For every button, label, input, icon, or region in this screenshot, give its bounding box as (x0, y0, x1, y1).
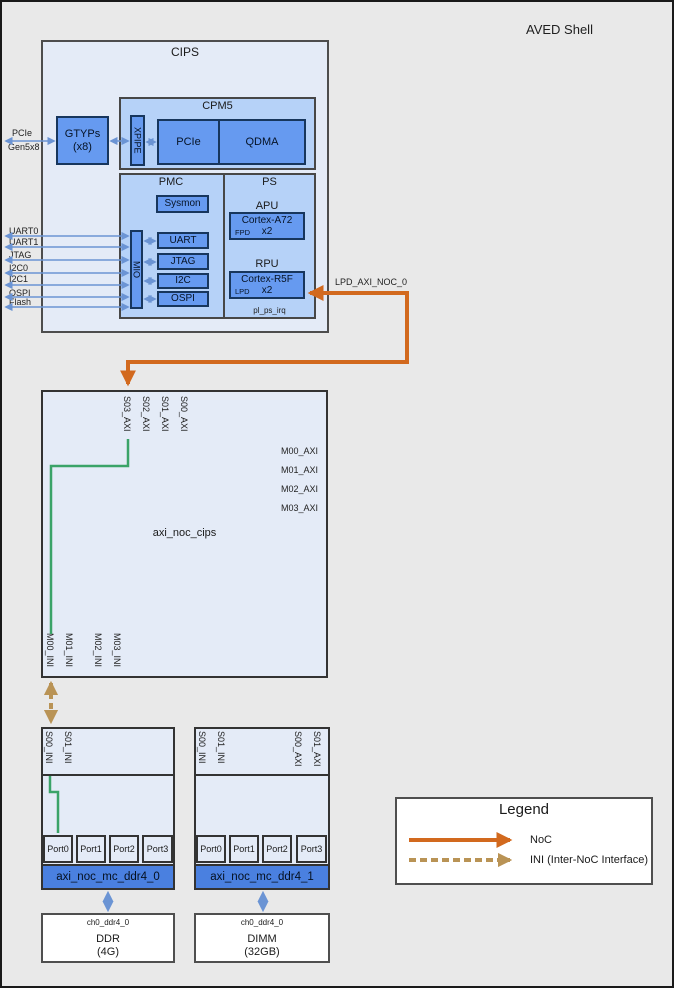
diagram-canvas: AVED Shell CIPS GTYPs (x8) CPM5 XPIPE PC… (0, 0, 674, 988)
pl-ps-irq-label: pl_ps_irq (223, 306, 316, 315)
s01-axi-port-label: S01_AXI (160, 396, 170, 432)
pcie-label: PCIe (176, 136, 200, 149)
pmc-ps-divider (223, 173, 225, 319)
mio-label: MIO (132, 261, 142, 278)
dimm-name-label: DIMM (32GB) (196, 933, 328, 959)
mc0-title-bar: axi_noc_mc_ddr4_0 (41, 864, 175, 890)
sysmon-box: Sysmon (156, 195, 209, 213)
sysmon-label: Sysmon (164, 198, 200, 210)
m01-ini-port-label: M01_INI (64, 633, 74, 667)
pcie-ext-label-line2: Gen5x8 (8, 142, 40, 152)
uart-box: UART (157, 232, 209, 249)
ddr-block: ch0_ddr4_0 DDR (4G) (41, 913, 175, 963)
mc1-s01-axi-label: S01_AXI (312, 731, 322, 767)
mc1-port1-box: Port1 (229, 835, 259, 863)
dimm-size: (32GB) (244, 946, 279, 958)
mc0-divider (41, 774, 175, 776)
dimm-block: ch0_ddr4_0 DIMM (32GB) (194, 913, 330, 963)
apu-count-label: x2 (262, 226, 273, 237)
mc0-port0-box: Port0 (43, 835, 73, 863)
mc1-divider (194, 774, 330, 776)
xpipe-label: XPIPE (133, 127, 143, 154)
pcie-ext-label-line1: PCIe (12, 128, 32, 138)
apu-core-label: Cortex-A72 (231, 215, 303, 226)
jtag-ext-label: JTAG (9, 250, 31, 260)
gtyps-label-line1: GTYPs (65, 128, 100, 141)
axi-noc-cips-title: axi_noc_cips (41, 527, 328, 539)
legend-ini-label: INI (Inter-NoC Interface) (530, 854, 648, 866)
ddr-channel-label: ch0_ddr4_0 (43, 918, 173, 927)
lpd-label: LPD (235, 287, 250, 296)
m03-axi-port-label: M03_AXI (268, 503, 318, 513)
mc1-port3-box: Port3 (296, 835, 327, 863)
jtag-label: JTAG (171, 256, 196, 268)
mc0-port3-box: Port3 (142, 835, 173, 863)
mc1-s01-ini-label: S01_INI (216, 731, 226, 764)
mc0-port2-box: Port2 (109, 835, 139, 863)
jtag-box: JTAG (157, 253, 209, 270)
uart-label: UART (169, 235, 196, 247)
qdma-box: QDMA (218, 119, 306, 165)
ospi-label: OSPI (171, 293, 195, 305)
apu-title: APU (229, 200, 305, 212)
legend-noc-label: NoC (530, 834, 552, 846)
pmc-title: PMC (119, 176, 223, 188)
i2c1-ext-label: I2C1 (9, 274, 28, 284)
page-title: AVED Shell (526, 22, 593, 37)
dimm-name: DIMM (247, 933, 276, 945)
cips-title: CIPS (41, 45, 329, 59)
mc0-s01-ini-label: S01_INI (63, 731, 73, 764)
dimm-channel-label: ch0_ddr4_0 (196, 918, 328, 927)
mc1-port2-box: Port2 (262, 835, 292, 863)
pcie-box: PCIe (157, 119, 220, 165)
mc1-s00-axi-label: S00_AXI (293, 731, 303, 767)
i2c-label: I2C (175, 275, 191, 287)
s03-axi-port-label: S03_AXI (122, 396, 132, 432)
s00-axi-port-label: S00_AXI (179, 396, 189, 432)
m02-ini-port-label: M02_INI (93, 633, 103, 667)
xpipe-box: XPIPE (130, 115, 145, 166)
i2c0-ext-label: I2C0 (9, 263, 28, 273)
legend-title: Legend (395, 801, 653, 818)
uart1-ext-label: UART1 (9, 237, 38, 247)
i2c-box: I2C (157, 273, 209, 289)
m00-axi-port-label: M00_AXI (268, 446, 318, 456)
mc0-s00-ini-label: S00_INI (44, 731, 54, 764)
cortex-r5f-box: Cortex-R5F LPD x2 (229, 271, 305, 299)
fpd-label: FPD (235, 228, 250, 237)
flash-ext-label: Flash (9, 297, 31, 307)
ddr-name: DDR (96, 933, 120, 945)
mc0-port1-box: Port1 (76, 835, 106, 863)
rpu-title: RPU (229, 258, 305, 270)
mio-box: MIO (130, 230, 143, 309)
uart0-ext-label: UART0 (9, 226, 38, 236)
gtyps-box: GTYPs (x8) (56, 116, 109, 165)
cpm5-title: CPM5 (119, 100, 316, 112)
m00-ini-port-label: M00_INI (45, 633, 55, 667)
cortex-a72-box: Cortex-A72 FPD x2 (229, 212, 305, 240)
ddr-size: (4G) (97, 946, 119, 958)
lpd-axi-noc-0-label: LPD_AXI_NOC_0 (335, 277, 407, 287)
mc1-s00-ini-label: S00_INI (197, 731, 207, 764)
qdma-label: QDMA (246, 136, 279, 149)
gtyps-label-line2: (x8) (73, 141, 92, 154)
m02-axi-port-label: M02_AXI (268, 484, 318, 494)
ps-title: PS (223, 176, 316, 188)
ddr-name-label: DDR (4G) (43, 933, 173, 959)
m01-axi-port-label: M01_AXI (268, 465, 318, 475)
mc1-port0-box: Port0 (196, 835, 226, 863)
mc1-title-bar: axi_noc_mc_ddr4_1 (194, 864, 330, 890)
s02-axi-port-label: S02_AXI (141, 396, 151, 432)
m03-ini-port-label: M03_INI (112, 633, 122, 667)
ospi-box: OSPI (157, 291, 209, 307)
rpu-count-label: x2 (262, 285, 273, 296)
rpu-core-label: Cortex-R5F (231, 274, 303, 285)
